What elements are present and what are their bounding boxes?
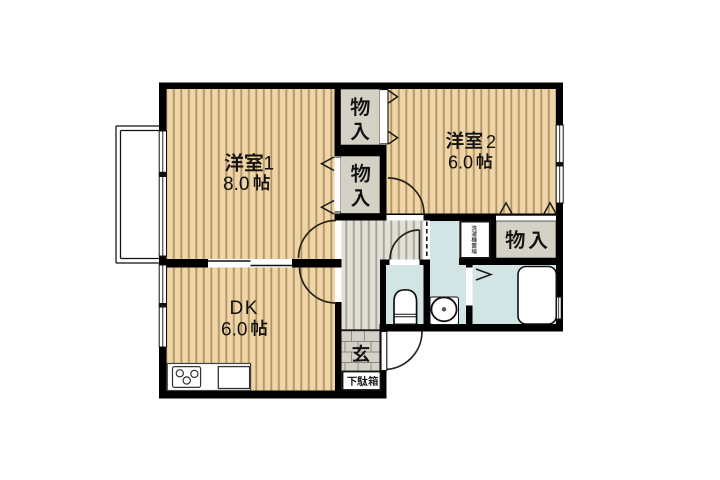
svg-text:1: 1 <box>264 154 275 175</box>
svg-text:6.0: 6.0 <box>448 153 473 173</box>
svg-text:8.0: 8.0 <box>223 174 249 195</box>
svg-text:2: 2 <box>486 132 496 152</box>
svg-text:DK: DK <box>230 298 259 319</box>
svg-text:6.0: 6.0 <box>221 320 247 341</box>
